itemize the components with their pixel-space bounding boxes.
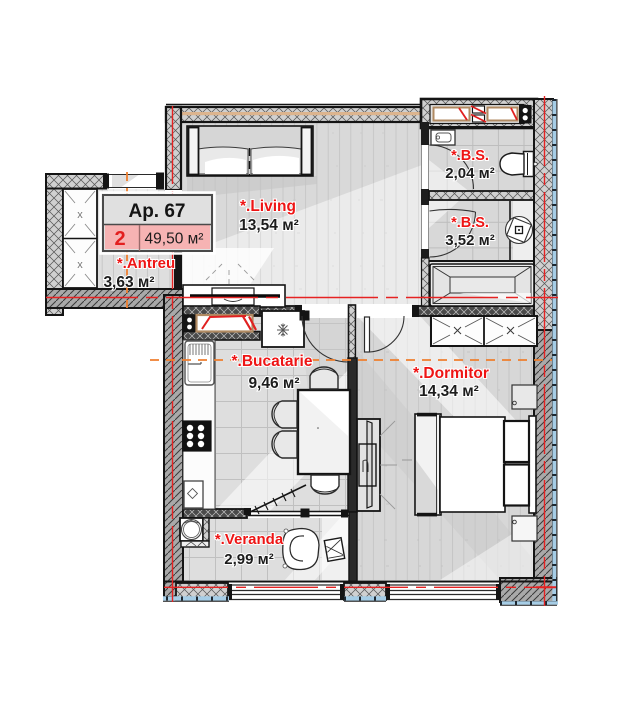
svg-text:x: x	[77, 259, 83, 271]
svg-text:*.Veranda: *.Veranda	[215, 531, 284, 548]
svg-text:*.Antreu: *.Antreu	[117, 255, 175, 272]
svg-text:x: x	[77, 209, 83, 221]
svg-text:*.B.S.: *.B.S.	[451, 148, 489, 164]
svg-text:2: 2	[114, 228, 125, 250]
svg-text:3,52 м²: 3,52 м²	[445, 232, 494, 249]
svg-text:3,63 м²: 3,63 м²	[103, 274, 154, 291]
svg-text:*.Bucatarie: *.Bucatarie	[232, 353, 313, 370]
svg-text:*.Living: *.Living	[240, 198, 296, 215]
svg-text:*.B.S.: *.B.S.	[451, 215, 489, 231]
svg-text:14,34 м²: 14,34 м²	[419, 383, 479, 400]
svg-text:2,99 м²: 2,99 м²	[224, 551, 273, 568]
svg-text:*.Dormitor: *.Dormitor	[413, 365, 489, 382]
svg-text:9,46 м²: 9,46 м²	[248, 375, 299, 392]
svg-text:2,04 м²: 2,04 м²	[445, 165, 494, 182]
svg-text:13,54 м²: 13,54 м²	[239, 217, 299, 234]
svg-text:49,50 м²: 49,50 м²	[145, 231, 204, 248]
svg-text:Ap. 67: Ap. 67	[128, 201, 185, 222]
